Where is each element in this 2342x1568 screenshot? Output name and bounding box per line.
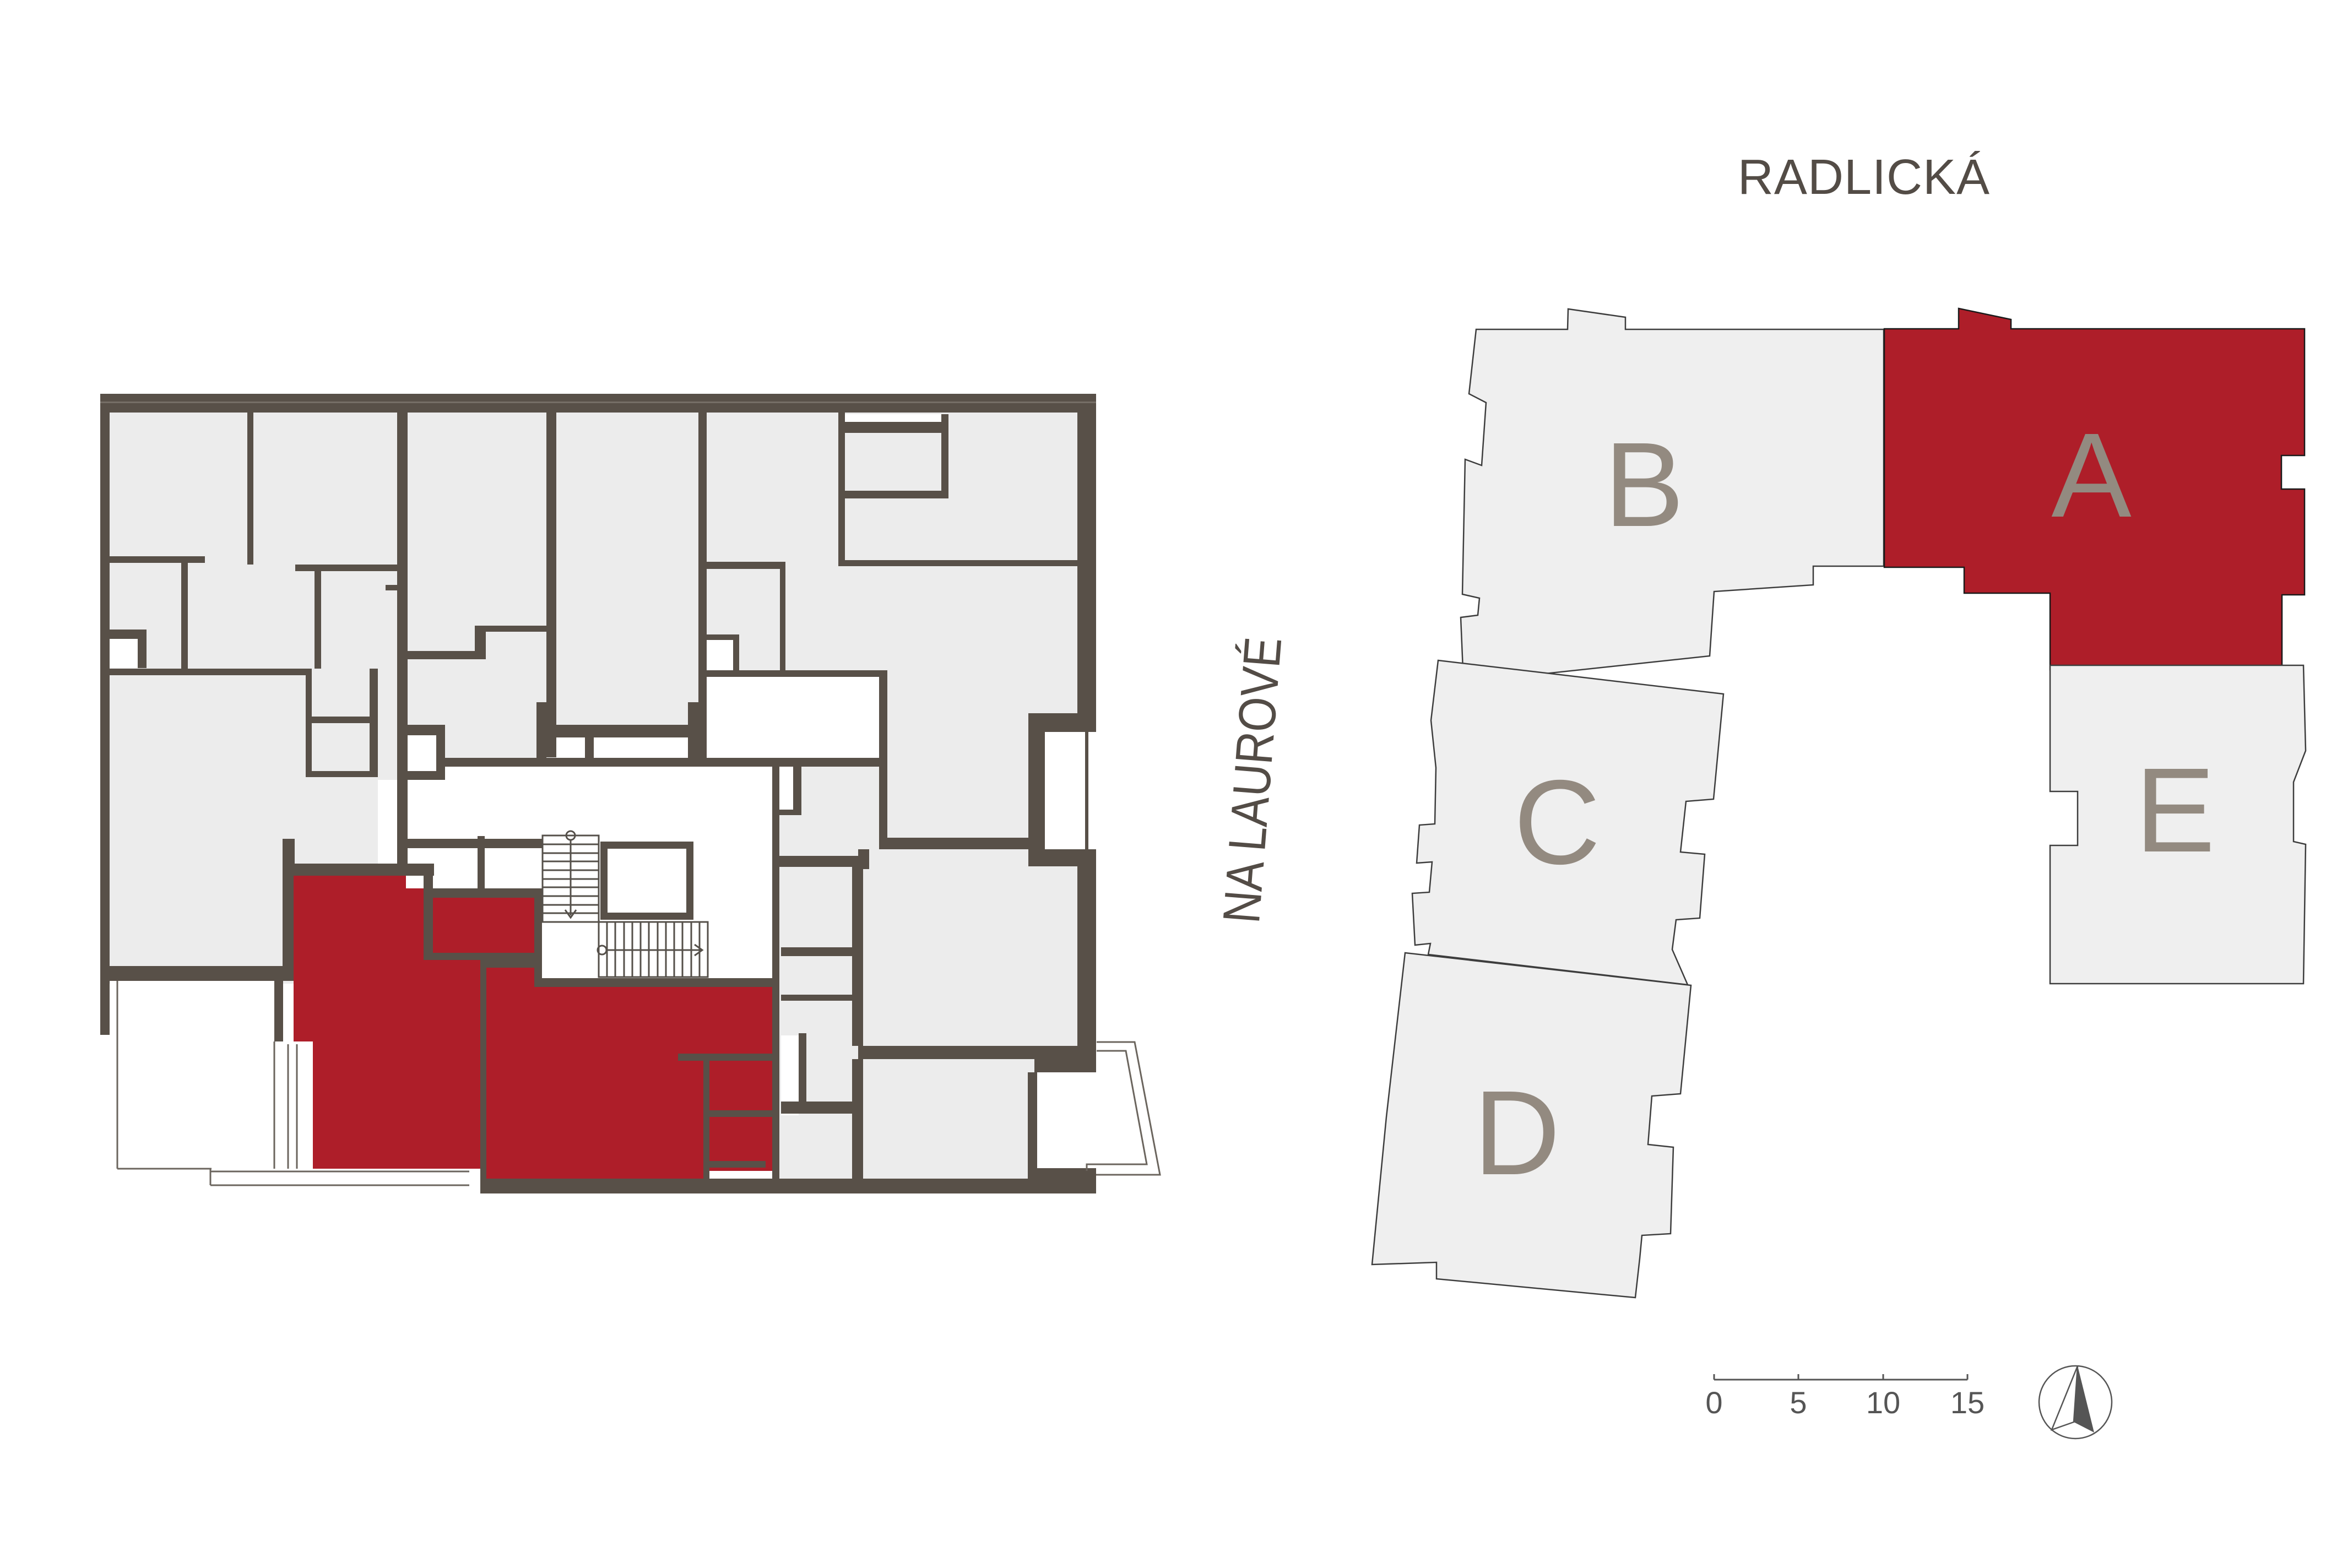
svg-text:RADLICKÁ: RADLICKÁ (1738, 150, 1990, 205)
svg-text:C: C (1514, 756, 1600, 889)
svg-text:0: 0 (1705, 1385, 1722, 1420)
svg-text:B: B (1604, 418, 1684, 552)
svg-text:E: E (2135, 744, 2215, 877)
svg-text:15: 15 (1950, 1385, 1985, 1420)
svg-text:D: D (1473, 1066, 1560, 1200)
svg-text:5: 5 (1790, 1385, 1807, 1420)
svg-text:10: 10 (1866, 1385, 1900, 1420)
svg-text:A: A (2051, 409, 2131, 542)
